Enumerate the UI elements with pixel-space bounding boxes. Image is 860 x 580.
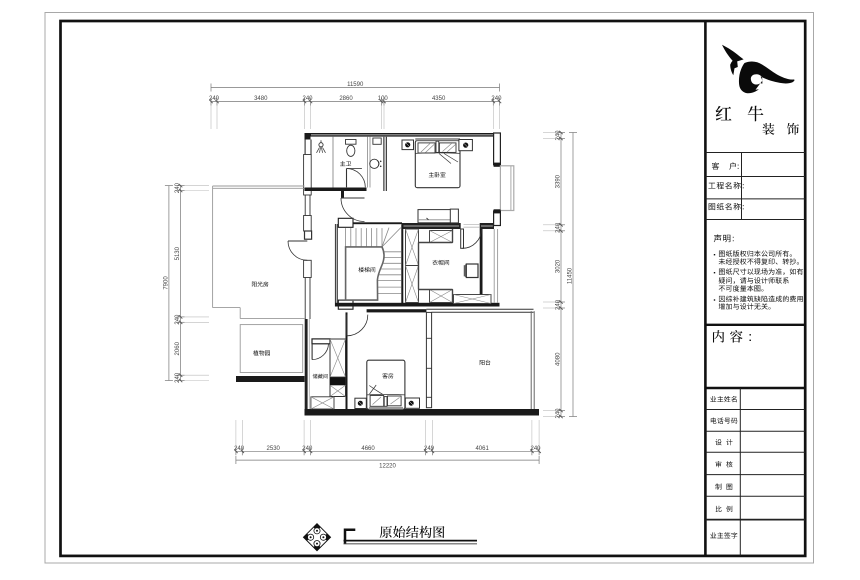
svg-text:4061: 4061 [475,446,489,452]
svg-text:11590: 11590 [347,82,364,88]
svg-text:7900: 7900 [163,276,169,290]
svg-text:240: 240 [491,96,502,102]
svg-text:240: 240 [209,96,220,102]
svg-text:240: 240 [302,96,313,102]
svg-text:240: 240 [175,182,181,193]
svg-text:4080: 4080 [556,352,562,366]
svg-text:3020: 3020 [556,259,562,273]
svg-text:11450: 11450 [568,267,574,284]
svg-text:12220: 12220 [379,464,396,470]
svg-text:240: 240 [175,314,181,325]
svg-text:4660: 4660 [361,446,375,452]
svg-text:4350: 4350 [432,96,446,102]
svg-text:2530: 2530 [267,446,281,452]
svg-text:2860: 2860 [339,96,353,102]
svg-text:3480: 3480 [254,96,268,102]
svg-text:240: 240 [556,130,562,141]
svg-text:240: 240 [556,299,562,310]
svg-text:2060: 2060 [175,341,181,355]
svg-text:240: 240 [556,408,562,419]
svg-text:240: 240 [175,372,181,383]
svg-text:100: 100 [378,96,389,102]
svg-text:240: 240 [556,222,562,233]
svg-text:3390: 3390 [556,174,562,188]
svg-text:5130: 5130 [175,246,181,260]
